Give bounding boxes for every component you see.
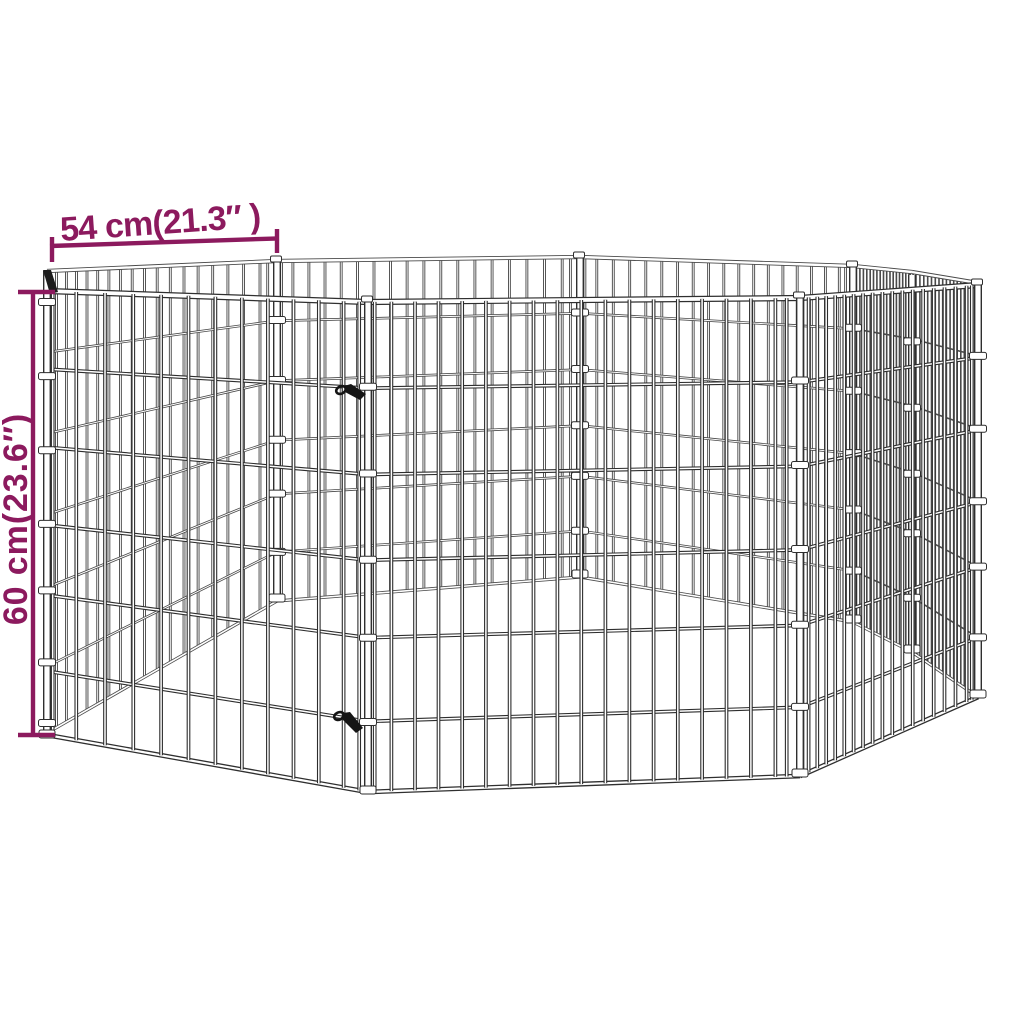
svg-text:60 cm(23.6″): 60 cm(23.6″)	[0, 413, 35, 625]
